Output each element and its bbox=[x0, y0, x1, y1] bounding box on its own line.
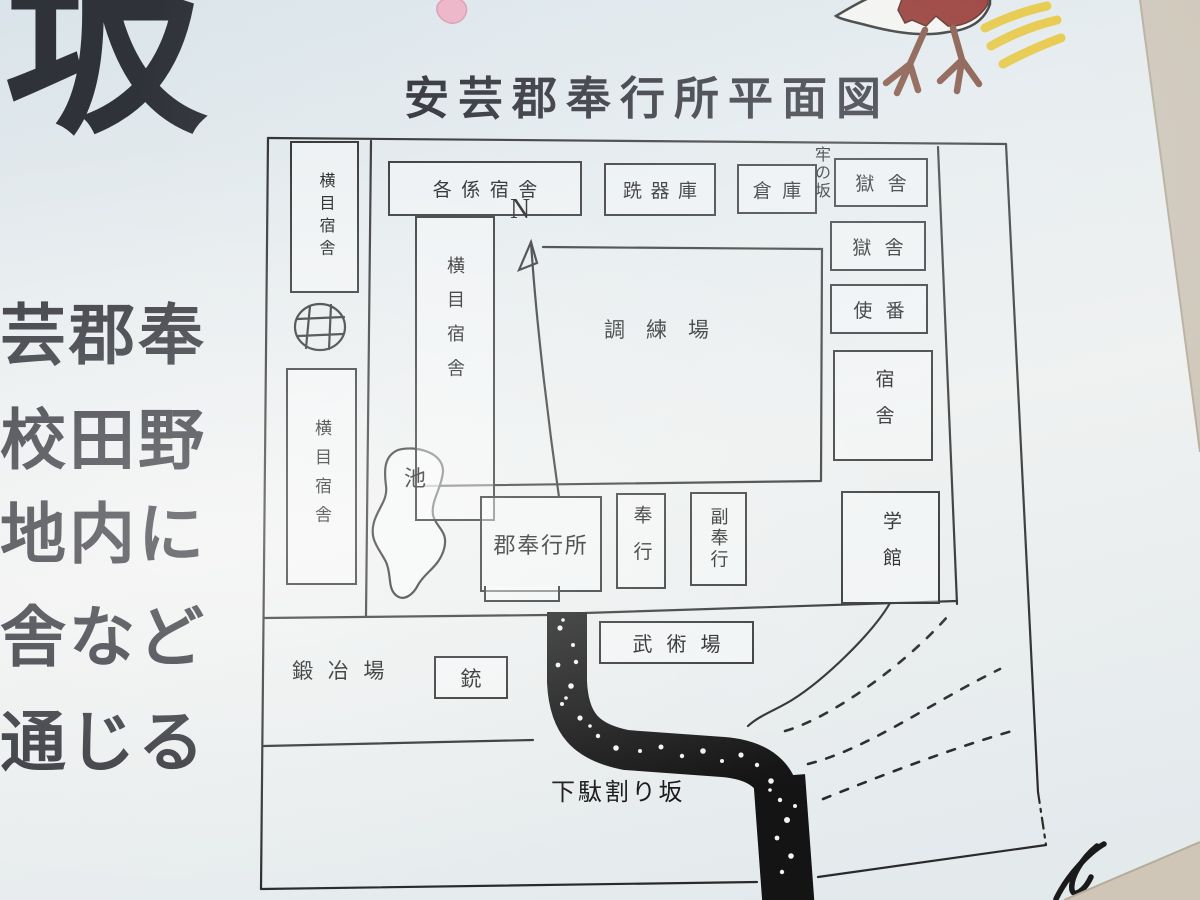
building-yokome-shukusha-1: 横目宿舎 bbox=[290, 141, 359, 293]
map-border-bottom bbox=[261, 845, 1046, 889]
building-soko: 倉庫 bbox=[737, 164, 817, 214]
map-border-left bbox=[261, 138, 268, 889]
building-gokusha-2: 獄舎 bbox=[830, 221, 926, 271]
building-senkiko: 跣器庫 bbox=[604, 163, 716, 216]
left-text-line: 校田野 bbox=[0, 407, 207, 473]
cherry-petal-icon bbox=[437, 0, 467, 23]
map-title: 安芸郡奉行所平面図 bbox=[404, 62, 890, 127]
building-shiban: 使番 bbox=[830, 284, 928, 334]
building-fuku-bugyo: 副奉行 bbox=[690, 492, 747, 586]
building-label: 副奉行 bbox=[706, 507, 732, 571]
building-gun-bugyosho-annex bbox=[484, 586, 560, 602]
building-shukusha: 宿舎 bbox=[833, 350, 933, 461]
photo-edges bbox=[1064, 0, 1200, 900]
left-text-line: 地内に bbox=[0, 501, 207, 567]
left-text-line: 芸郡奉 bbox=[0, 302, 207, 368]
wall-kajiba-bottom bbox=[264, 740, 533, 746]
wall-left-column bbox=[366, 141, 371, 616]
label-getawari-zaka: 下駄割り坂 bbox=[551, 772, 685, 807]
map-border-right-dashed bbox=[1038, 792, 1046, 845]
building-label: 学館 bbox=[877, 511, 904, 583]
building-bugyo: 奉行 bbox=[616, 493, 666, 589]
label-north: N bbox=[510, 194, 530, 226]
map-border-top bbox=[268, 138, 1006, 144]
slope-curve bbox=[748, 603, 890, 726]
building-label: 宿舎 bbox=[870, 369, 897, 441]
building-label: 跣器庫 bbox=[614, 176, 705, 203]
building-gakkan: 学館 bbox=[841, 491, 940, 604]
building-bujutsujo: 武術場 bbox=[599, 621, 754, 664]
building-kakugakari-shukusha: 各係宿舎 bbox=[388, 161, 582, 216]
building-label: 倉庫 bbox=[742, 176, 811, 203]
building-gokusha-1: 獄舎 bbox=[834, 158, 928, 207]
building-label: 使番 bbox=[840, 296, 918, 323]
building-label: 獄舎 bbox=[842, 169, 920, 196]
building-gun-bugyosho: 郡奉行所 bbox=[480, 496, 602, 592]
north-arrow-line bbox=[531, 242, 559, 497]
label-ike: 池 bbox=[404, 461, 426, 493]
building-label: 獄舎 bbox=[839, 233, 917, 260]
contour-dashed-3 bbox=[823, 731, 1012, 799]
building-yokome-shukusha-3: 横目宿舎 bbox=[415, 216, 495, 521]
north-arrow-head bbox=[519, 242, 537, 270]
building-label: 奉行 bbox=[628, 505, 655, 577]
building-label: 郡奉行所 bbox=[493, 528, 588, 560]
label-ro-no-saka: 牢の坂 bbox=[808, 146, 832, 200]
wall-right-column bbox=[938, 147, 957, 604]
label-kajiba: 鍛冶場 bbox=[292, 655, 399, 685]
motion-lines bbox=[985, 6, 1061, 64]
sign-photo: 坂 安芸郡奉行所平面図 芸郡奉 校田野 地内に 舎など 通じる 横目宿舎 横目宿… bbox=[0, 0, 1200, 900]
building-label: 武術場 bbox=[619, 628, 735, 657]
left-text-line: 舎など bbox=[0, 604, 207, 670]
building-ju: 銃 bbox=[434, 656, 508, 699]
label-chorenjo: 調練場 bbox=[569, 314, 744, 344]
building-yokome-shukusha-2: 横目宿舎 bbox=[286, 368, 357, 585]
well-icon bbox=[295, 304, 345, 350]
left-text-line: 通じる bbox=[0, 709, 207, 775]
map-border-right bbox=[1006, 144, 1038, 792]
bird-legs bbox=[886, 28, 979, 93]
building-label: 横目宿舎 bbox=[442, 256, 468, 393]
building-label: 横目宿舎 bbox=[313, 172, 337, 262]
building-label: 銃 bbox=[461, 663, 482, 693]
big-slope-character: 坂 bbox=[4, 0, 208, 146]
contour-dashed-2 bbox=[808, 669, 1000, 764]
building-label: 横目宿舎 bbox=[309, 419, 334, 535]
